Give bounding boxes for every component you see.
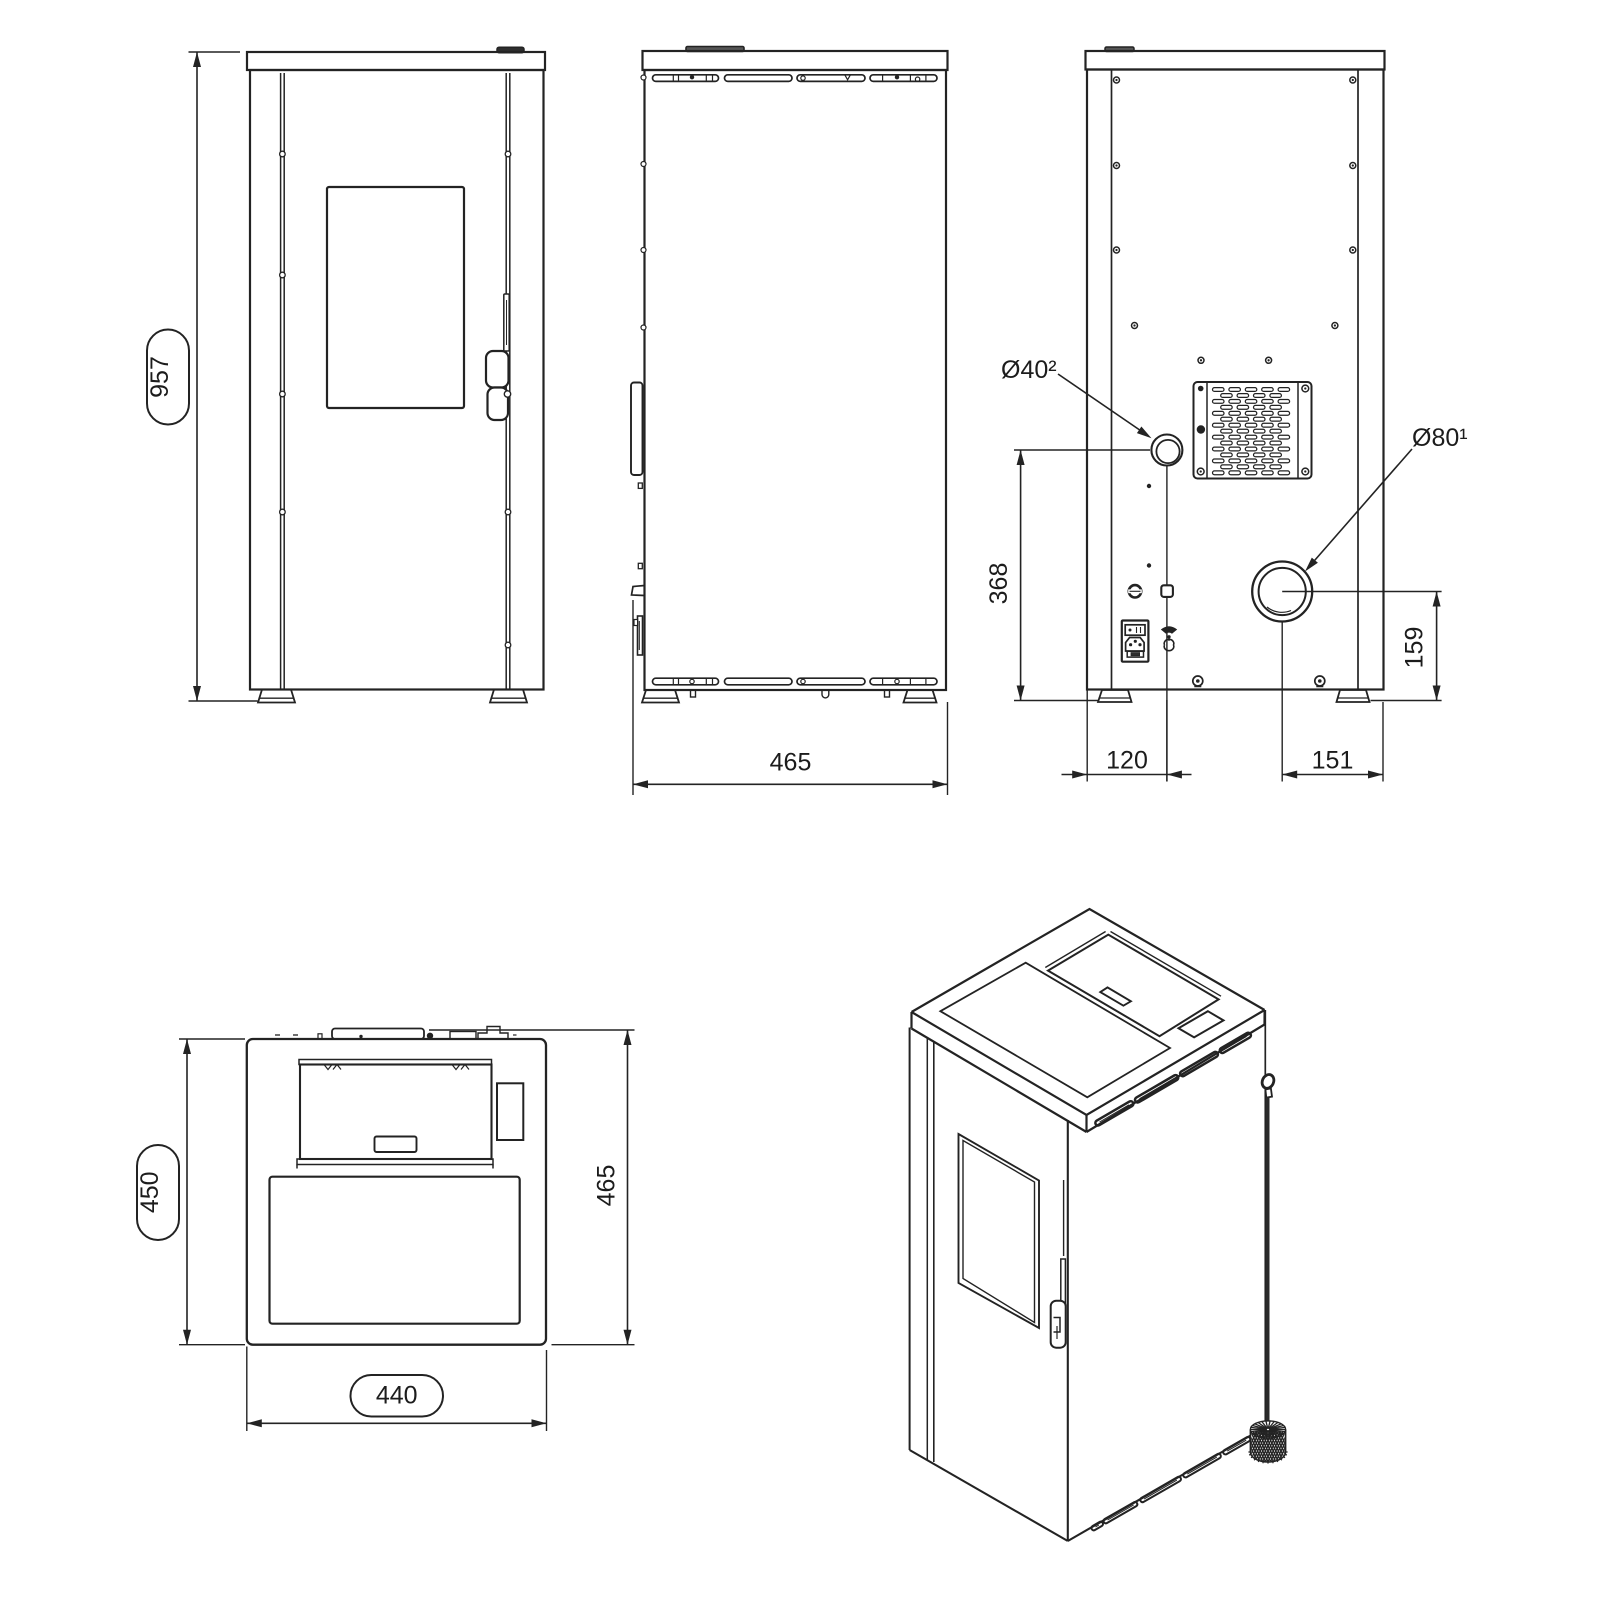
- svg-text:465: 465: [770, 749, 812, 777]
- svg-text:957: 957: [146, 356, 174, 398]
- svg-text:440: 440: [376, 1382, 418, 1410]
- svg-text:151: 151: [1312, 746, 1354, 774]
- svg-text:Ø40²: Ø40²: [1001, 356, 1057, 384]
- svg-text:Ø80¹: Ø80¹: [1412, 424, 1468, 452]
- svg-text:368: 368: [985, 563, 1013, 605]
- svg-text:120: 120: [1106, 746, 1148, 774]
- svg-text:450: 450: [136, 1171, 164, 1213]
- svg-text:159: 159: [1401, 627, 1429, 669]
- svg-text:465: 465: [593, 1165, 621, 1207]
